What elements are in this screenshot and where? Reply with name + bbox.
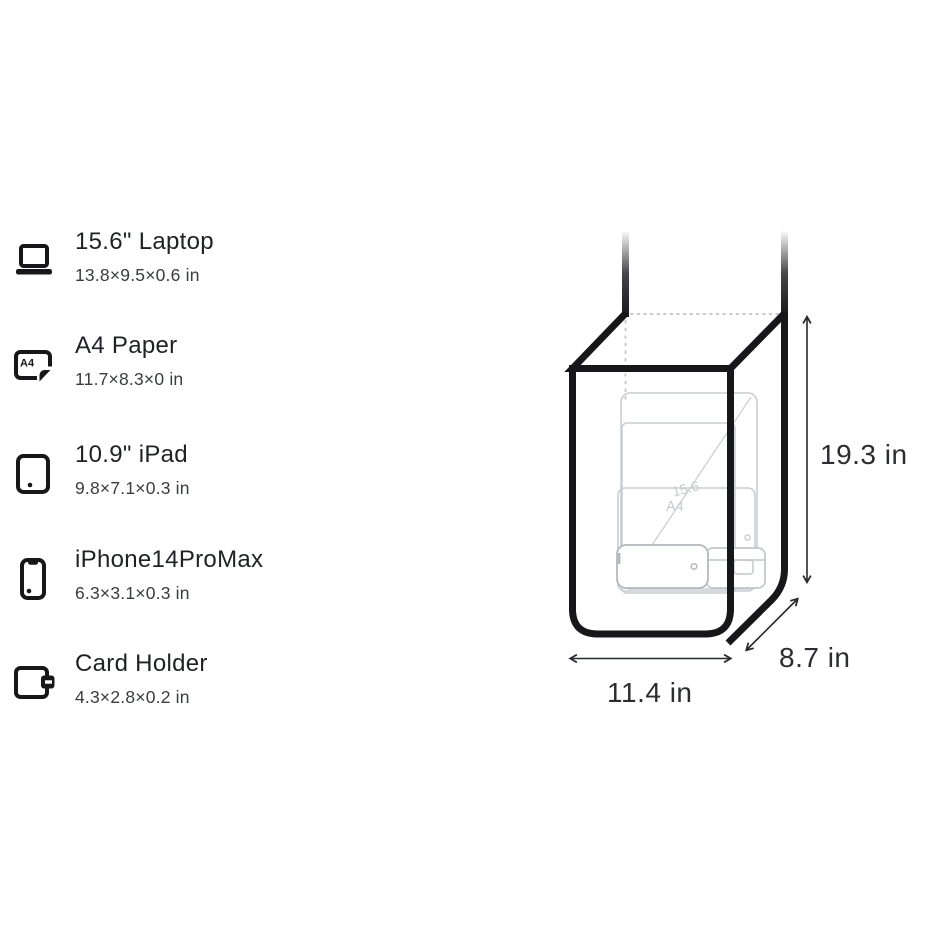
depth-label: 8.7 in <box>779 642 851 673</box>
product-dimensions-figure: 15.6" Laptop 13.8×9.5×0.6 in A4 A4 Paper… <box>0 0 938 938</box>
bag-strap-lines <box>626 231 785 317</box>
width-label: 11.4 in <box>607 677 693 708</box>
ghost-card-holder <box>706 548 765 588</box>
height-label: 19.3 in <box>820 439 908 470</box>
ghost-iphone <box>617 545 708 588</box>
ghost-items: 15.6 A4 <box>617 393 765 593</box>
ghost-a4-label: A4 <box>666 499 684 515</box>
bag-capacity-diagram: 15.6 A4 <box>0 0 938 938</box>
bag-top-face <box>573 314 785 369</box>
hidden-edges <box>626 314 780 400</box>
